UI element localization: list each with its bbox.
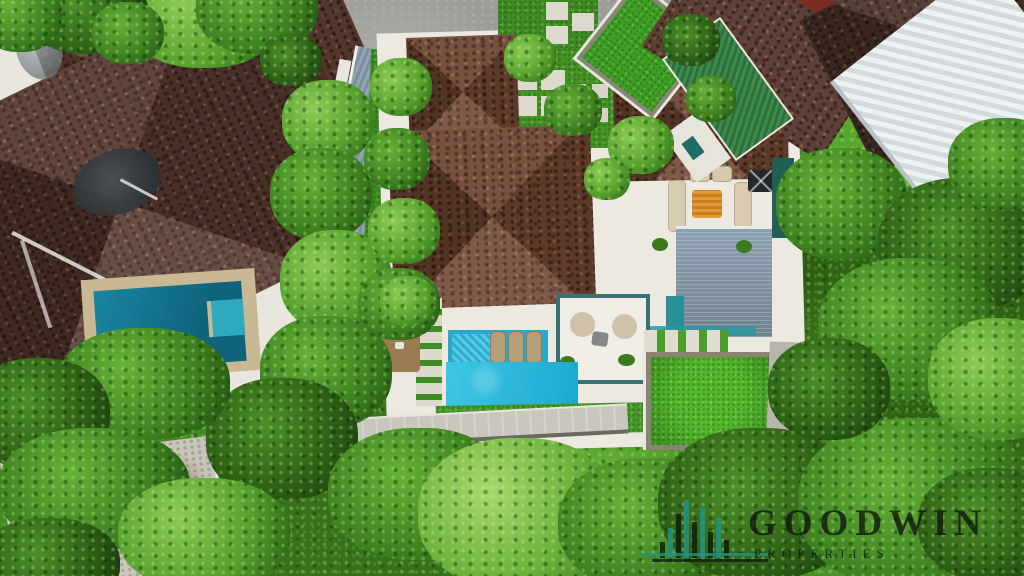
tree-canopy (662, 14, 720, 66)
swimming-pool (446, 362, 578, 408)
rooftop-table-orange (692, 190, 722, 218)
terrace-side-table (591, 331, 609, 347)
watermark-tagline-text: PROPERTIES (754, 546, 890, 562)
garden-plant (380, 276, 436, 326)
tree-canopy (260, 34, 322, 86)
courtyard-plant (544, 84, 602, 136)
palm-tree (370, 58, 432, 116)
metal-roof-gray-blue (676, 226, 772, 337)
potted-plant (618, 354, 635, 366)
palm-tree (270, 148, 372, 240)
sun-lounger (508, 331, 524, 364)
garden-object (395, 342, 404, 349)
courtyard-plant (686, 76, 736, 122)
potted-plant (652, 238, 668, 251)
buildings-skyline-icon (660, 500, 729, 558)
rooftop-sofa (668, 180, 686, 232)
black-parasol (748, 170, 774, 192)
stepping-stone (546, 2, 568, 20)
potted-plant (736, 240, 752, 253)
aerial-photo: GOODWIN PROPERTIES (0, 0, 1024, 576)
logo-baseline-dark (652, 559, 768, 562)
watermark-brand-text: GOODWIN (748, 502, 988, 545)
tree-canopy (768, 338, 890, 440)
neighbor-jacuzzi (207, 299, 245, 337)
palm-tree (368, 198, 440, 264)
tree-canopy (118, 478, 290, 576)
stepping-stone (572, 13, 594, 31)
stepping-stone-row (644, 330, 728, 352)
goodwin-watermark: GOODWIN PROPERTIES (636, 494, 976, 572)
courtyard-plant (504, 34, 556, 82)
tree-canopy (92, 2, 164, 64)
sun-lounger (490, 331, 506, 364)
palm-tree (364, 128, 430, 190)
sun-lounger (526, 331, 542, 364)
wicker-round-chair (608, 310, 641, 343)
logo-baseline-teal (640, 553, 768, 556)
garden-plant (584, 158, 630, 200)
